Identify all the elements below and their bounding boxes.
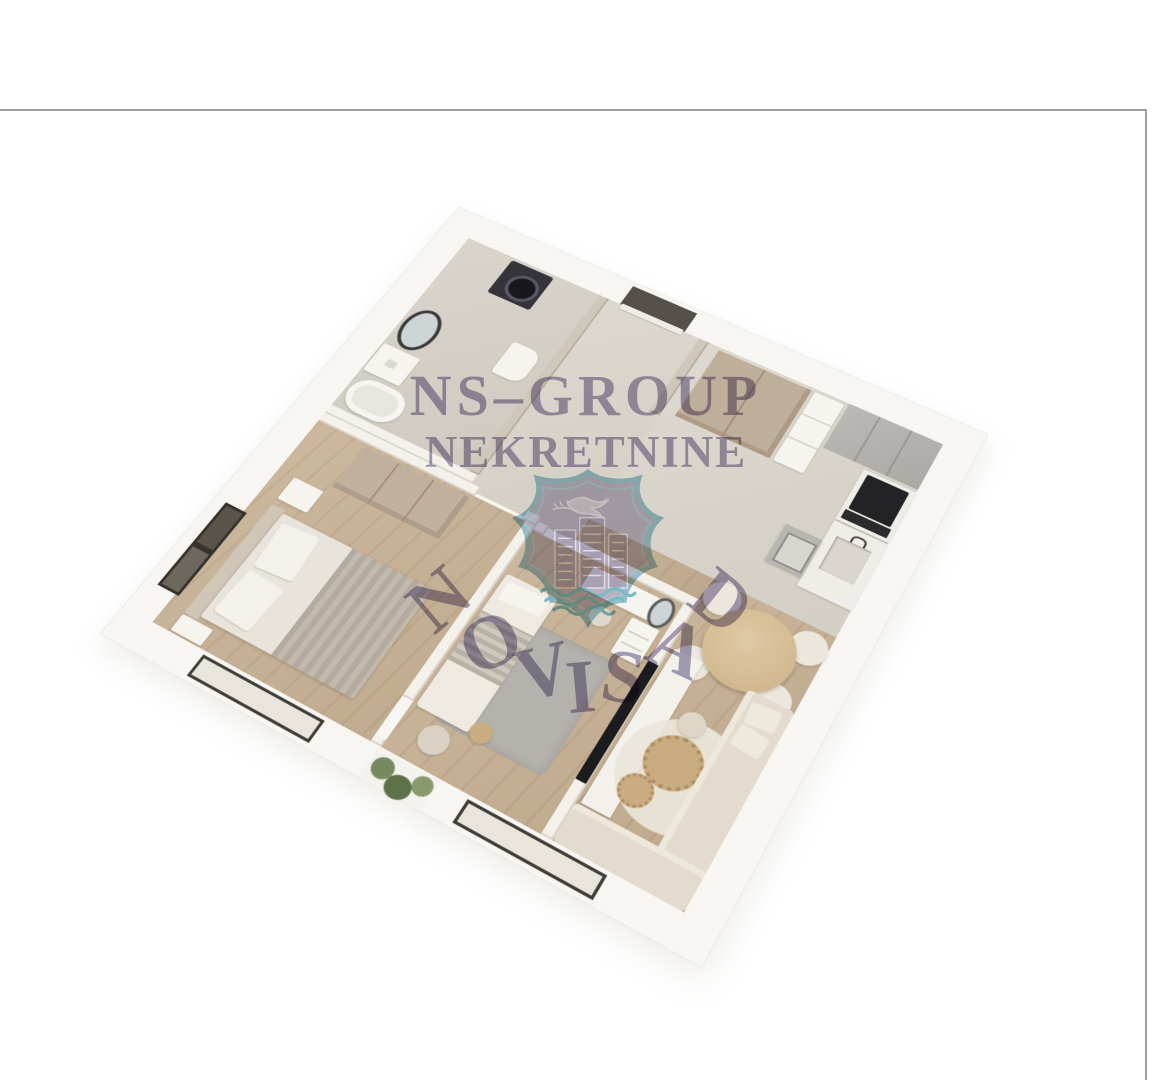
sink-basin — [384, 359, 399, 370]
wardrobe-door-seam — [721, 370, 766, 437]
drawer-line — [628, 630, 649, 642]
wardrobe-door-seam — [367, 463, 400, 504]
frame-right-line — [1145, 109, 1147, 1080]
cabinet-seam — [853, 417, 881, 462]
shelf-line — [787, 436, 818, 451]
shelf-line — [801, 413, 831, 427]
cabinet-seam — [885, 430, 912, 476]
drawer-line — [621, 641, 642, 653]
wardrobe-door-seam — [402, 480, 435, 522]
frame-top-line — [0, 109, 1147, 111]
apartment-render-page: NS–GROUP NEKRETNINE — [0, 0, 1173, 1080]
apartment-3d-floorplan — [99, 207, 988, 969]
